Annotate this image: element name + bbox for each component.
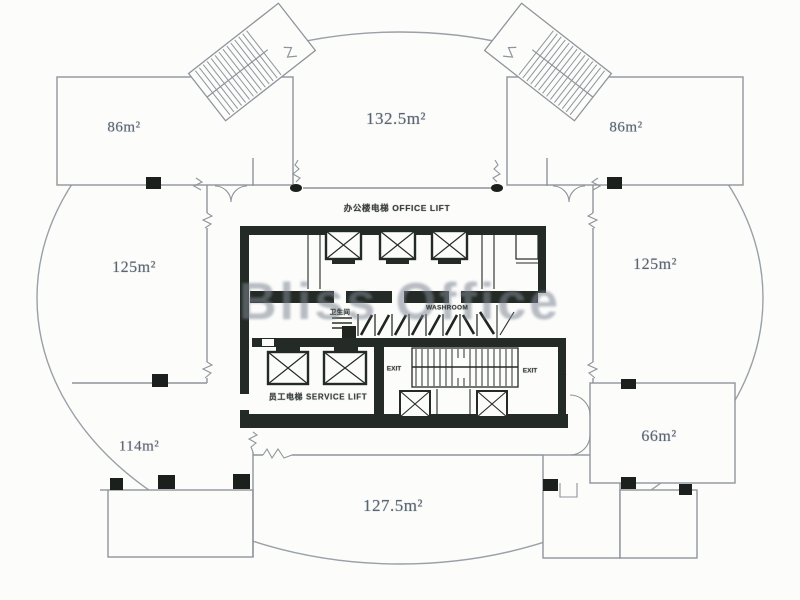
washroom-label-en: WASHROOM — [426, 305, 468, 312]
room-label-mid-left: 125m² — [112, 259, 156, 277]
room-label-mid-right: 125m² — [633, 256, 677, 274]
room-label-bottom-right: 66m² — [641, 428, 676, 446]
wing-bottom-left — [108, 490, 253, 557]
room-bottom-right-cell-b — [620, 490, 697, 558]
office-lift-label: 办公楼电梯 OFFICE LIFT — [344, 202, 451, 214]
washroom-label-cn: 卫生间 — [330, 306, 350, 316]
exit-label-right: EXIT — [523, 368, 537, 375]
room-label-bottom-left: 114m² — [119, 439, 160, 456]
room-label-top-center: 132.5m² — [366, 109, 426, 129]
exit-label-left: EXIT — [387, 366, 401, 373]
core-stairs — [412, 348, 518, 387]
room-label-top-left: 86m² — [107, 120, 140, 137]
room-label-bottom-center: 127.5m² — [363, 496, 423, 516]
watermark-text: Bliss Office — [239, 272, 561, 332]
core-wall-gap — [262, 339, 274, 346]
service-lift-label: 员工电梯 SERVICE LIFT — [269, 392, 368, 403]
room-label-top-right: 86m² — [609, 120, 642, 137]
floorplan-page: Bliss Office 86m² 132.5m² 86m² 125m² 125… — [0, 0, 800, 600]
